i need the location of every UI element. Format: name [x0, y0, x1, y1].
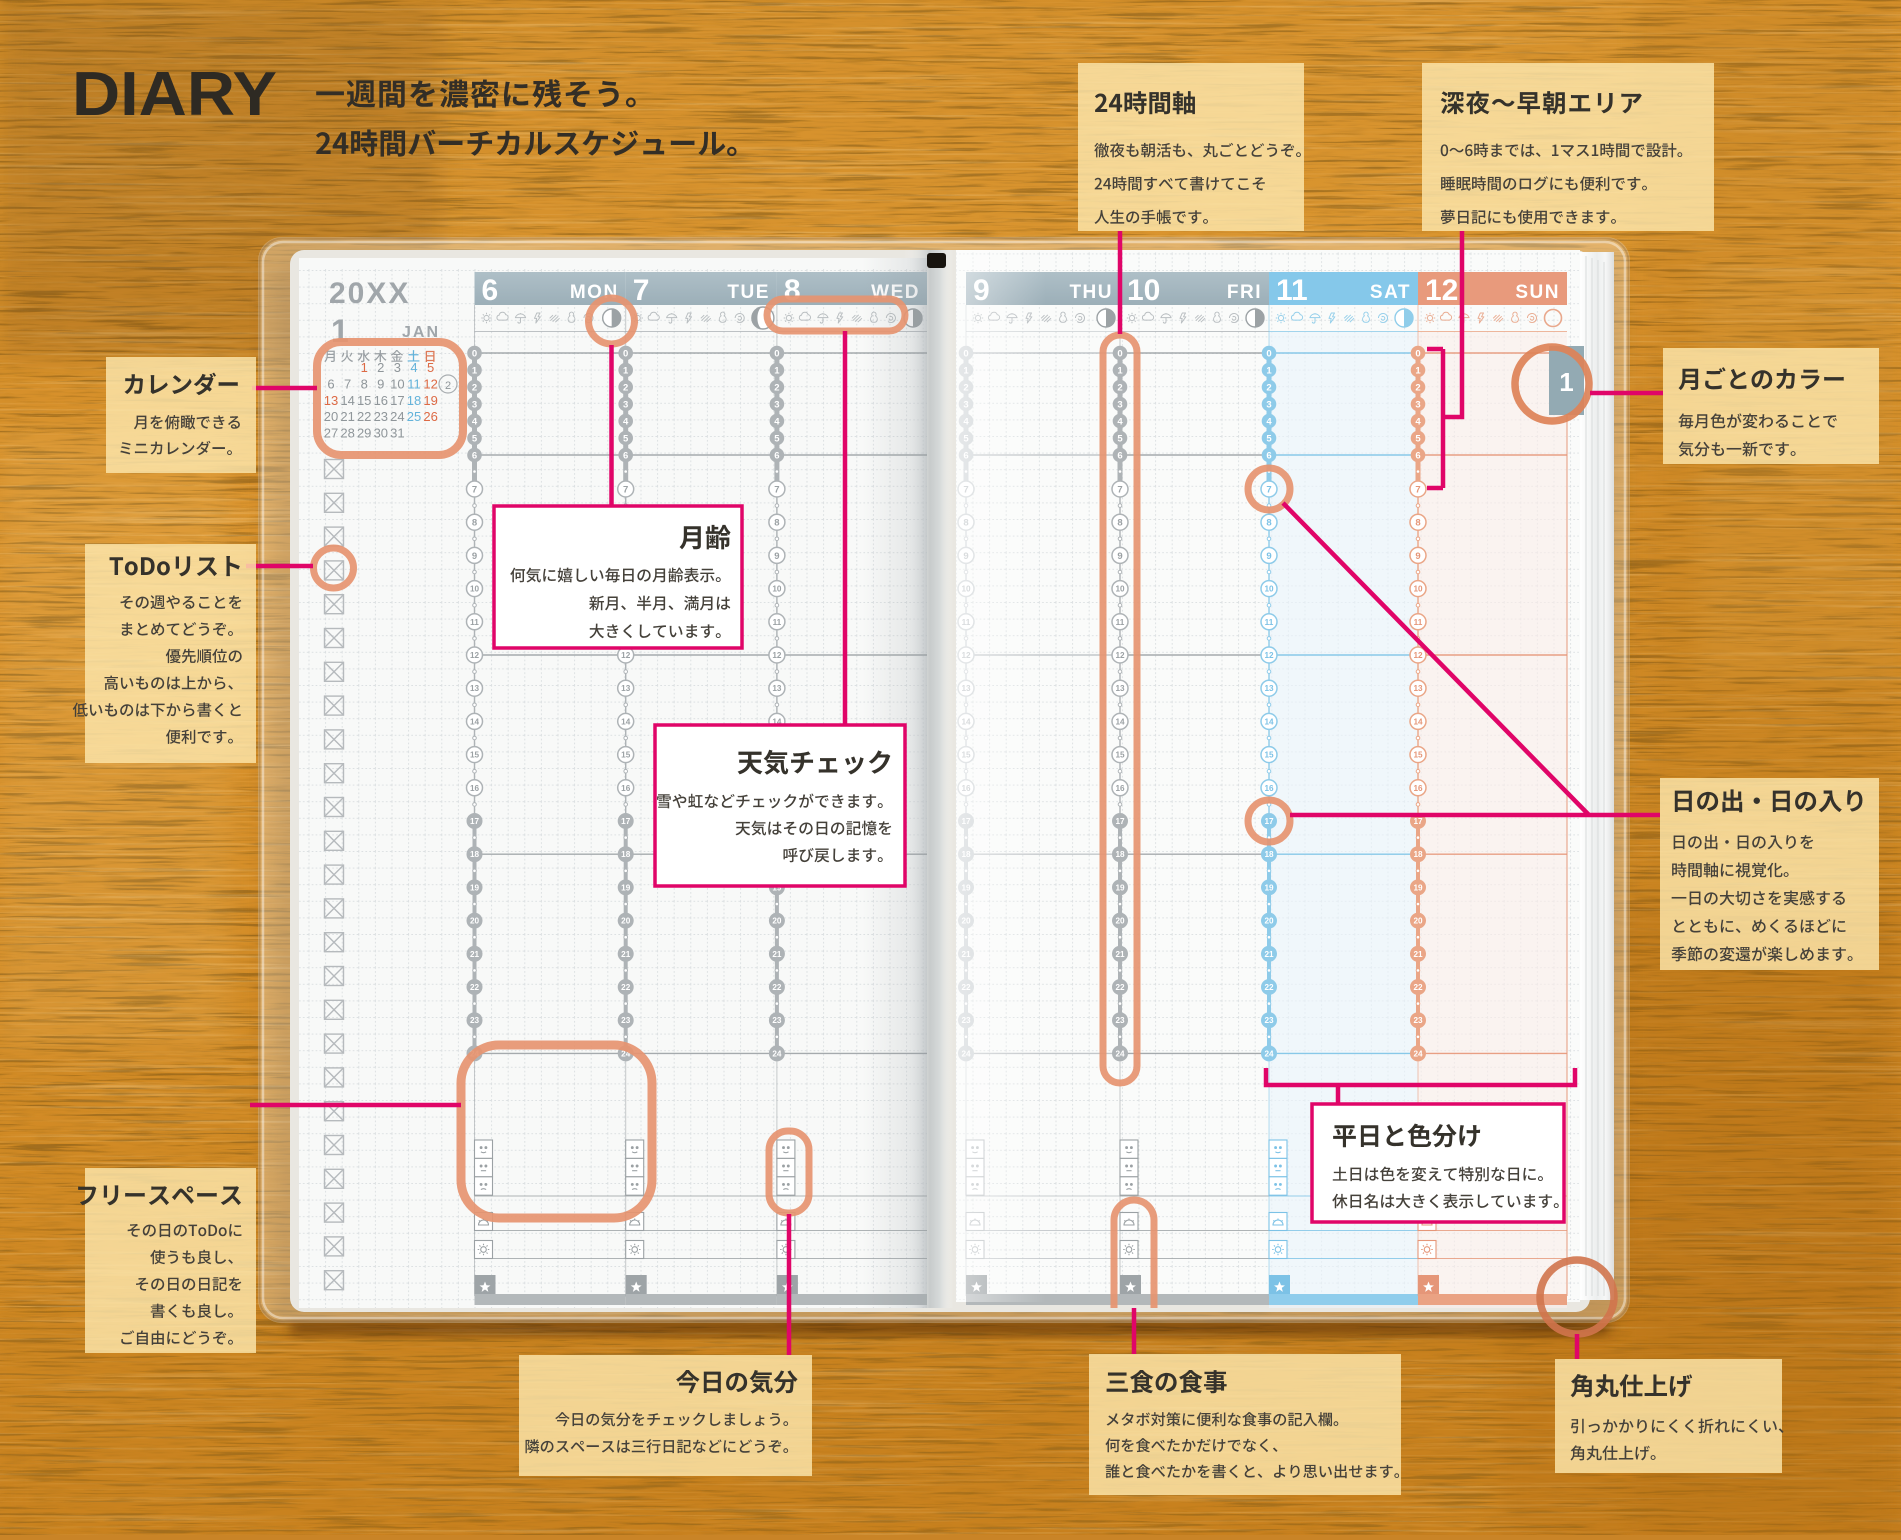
svg-text:15: 15 — [357, 393, 371, 408]
svg-text:30: 30 — [374, 426, 388, 441]
svg-text:6: 6 — [1117, 450, 1122, 461]
svg-text:2: 2 — [472, 382, 477, 393]
svg-text:31: 31 — [390, 426, 404, 441]
svg-text:22: 22 — [1115, 983, 1125, 992]
svg-text:0: 0 — [774, 348, 779, 359]
svg-text:18: 18 — [407, 393, 421, 408]
svg-text:16: 16 — [470, 784, 480, 793]
svg-text:17: 17 — [1264, 817, 1274, 826]
svg-text:10: 10 — [1127, 274, 1160, 307]
svg-text:3: 3 — [1415, 399, 1420, 410]
svg-text:4: 4 — [623, 416, 629, 427]
svg-text:12: 12 — [621, 651, 631, 660]
svg-text:20: 20 — [621, 917, 631, 926]
svg-text:7: 7 — [774, 484, 779, 495]
svg-text:FRI: FRI — [1227, 282, 1262, 303]
svg-text:15: 15 — [1264, 751, 1274, 760]
svg-text:14: 14 — [470, 717, 480, 726]
svg-text:13: 13 — [621, 684, 631, 693]
svg-text:3: 3 — [623, 399, 628, 410]
svg-text:22: 22 — [772, 983, 782, 992]
svg-text:2: 2 — [774, 382, 779, 393]
svg-text:16: 16 — [1264, 784, 1274, 793]
svg-text:11: 11 — [773, 618, 782, 627]
svg-text:1: 1 — [1415, 365, 1421, 376]
svg-text:1: 1 — [774, 365, 780, 376]
svg-text:2: 2 — [1117, 382, 1122, 393]
svg-text:10: 10 — [390, 376, 404, 391]
svg-text:5: 5 — [1415, 433, 1421, 444]
svg-text:4: 4 — [410, 360, 417, 375]
svg-text:5: 5 — [472, 433, 478, 444]
svg-text:12: 12 — [1115, 651, 1125, 660]
svg-text:2: 2 — [1266, 382, 1271, 393]
svg-text:20: 20 — [1413, 917, 1423, 926]
svg-text:5: 5 — [1117, 433, 1123, 444]
svg-text:11: 11 — [1116, 618, 1125, 627]
svg-text:22: 22 — [470, 983, 480, 992]
svg-text:9: 9 — [1415, 551, 1420, 562]
svg-text:6: 6 — [482, 274, 499, 307]
svg-text:19: 19 — [621, 883, 631, 892]
svg-text:0: 0 — [472, 348, 477, 359]
svg-text:1: 1 — [361, 360, 368, 375]
svg-text:16: 16 — [621, 784, 631, 793]
svg-text:15: 15 — [621, 751, 631, 760]
svg-text:23: 23 — [1115, 1016, 1125, 1025]
svg-text:TUE: TUE — [727, 282, 770, 303]
svg-text:11: 11 — [1276, 274, 1308, 307]
svg-text:13: 13 — [324, 393, 338, 408]
svg-text:7: 7 — [1266, 484, 1271, 495]
svg-text:26: 26 — [423, 409, 437, 424]
svg-text:3: 3 — [1117, 399, 1122, 410]
svg-text:7: 7 — [1117, 484, 1122, 495]
svg-text:10: 10 — [1413, 585, 1423, 594]
svg-text:13: 13 — [1264, 684, 1274, 693]
svg-text:0: 0 — [1266, 348, 1271, 359]
svg-text:12: 12 — [470, 651, 480, 660]
svg-text:22: 22 — [1413, 983, 1423, 992]
svg-text:7: 7 — [344, 376, 351, 391]
svg-text:7: 7 — [623, 484, 628, 495]
svg-text:2: 2 — [377, 360, 384, 375]
svg-text:9: 9 — [1266, 551, 1271, 562]
svg-text:2: 2 — [1415, 382, 1420, 393]
svg-text:6: 6 — [327, 376, 334, 391]
svg-text:5: 5 — [623, 433, 629, 444]
svg-text:24: 24 — [1264, 1049, 1274, 1058]
svg-text:18: 18 — [1413, 850, 1423, 859]
svg-text:1: 1 — [1266, 365, 1272, 376]
svg-text:14: 14 — [1413, 717, 1423, 726]
svg-text:17: 17 — [1413, 817, 1423, 826]
svg-text:8: 8 — [1117, 518, 1122, 529]
svg-text:11: 11 — [470, 618, 479, 627]
svg-text:1: 1 — [1559, 367, 1573, 397]
svg-text:2: 2 — [445, 380, 451, 392]
svg-text:21: 21 — [1115, 950, 1125, 959]
svg-text:2: 2 — [623, 382, 628, 393]
svg-text:13: 13 — [1115, 684, 1125, 693]
svg-text:7: 7 — [633, 274, 650, 307]
svg-text:21: 21 — [470, 950, 480, 959]
svg-text:6: 6 — [1415, 450, 1420, 461]
svg-text:16: 16 — [374, 393, 388, 408]
svg-text:14: 14 — [340, 393, 354, 408]
svg-text:21: 21 — [1264, 950, 1274, 959]
svg-text:18: 18 — [1264, 850, 1274, 859]
svg-text:11: 11 — [407, 376, 421, 391]
svg-text:16: 16 — [1413, 784, 1423, 793]
svg-text:5: 5 — [774, 433, 780, 444]
svg-text:THU: THU — [1069, 282, 1113, 303]
svg-text:9: 9 — [774, 551, 779, 562]
svg-text:23: 23 — [772, 1016, 782, 1025]
svg-text:13: 13 — [772, 684, 782, 693]
svg-text:7: 7 — [472, 484, 477, 495]
svg-text:8: 8 — [1266, 518, 1271, 529]
svg-text:17: 17 — [1115, 817, 1125, 826]
svg-text:20: 20 — [470, 917, 480, 926]
svg-text:23: 23 — [470, 1016, 480, 1025]
svg-text:23: 23 — [374, 409, 388, 424]
svg-text:1: 1 — [472, 365, 478, 376]
svg-text:12: 12 — [1413, 651, 1423, 660]
svg-text:10: 10 — [1264, 585, 1274, 594]
svg-text:20XX: 20XX — [329, 277, 410, 310]
svg-text:22: 22 — [357, 409, 371, 424]
svg-text:27: 27 — [324, 426, 338, 441]
svg-text:14: 14 — [621, 717, 631, 726]
svg-text:13: 13 — [470, 684, 480, 693]
svg-text:29: 29 — [357, 426, 371, 441]
svg-text:22: 22 — [1264, 983, 1274, 992]
svg-text:12: 12 — [1264, 651, 1274, 660]
svg-text:10: 10 — [772, 585, 782, 594]
svg-text:19: 19 — [1115, 883, 1125, 892]
svg-text:19: 19 — [1413, 883, 1423, 892]
svg-text:18: 18 — [1115, 850, 1125, 859]
svg-text:3: 3 — [394, 360, 401, 375]
svg-text:25: 25 — [407, 409, 421, 424]
svg-text:DIARY: DIARY — [72, 60, 277, 129]
svg-text:4: 4 — [472, 416, 478, 427]
svg-text:19: 19 — [470, 883, 480, 892]
svg-text:1: 1 — [1117, 365, 1123, 376]
svg-text:5: 5 — [1266, 433, 1272, 444]
svg-text:3: 3 — [774, 399, 779, 410]
svg-text:20: 20 — [1115, 917, 1125, 926]
svg-text:3: 3 — [472, 399, 477, 410]
svg-text:17: 17 — [390, 393, 404, 408]
svg-text:19: 19 — [1264, 883, 1274, 892]
svg-text:9: 9 — [377, 376, 384, 391]
svg-text:8: 8 — [361, 376, 368, 391]
svg-text:4: 4 — [1266, 416, 1272, 427]
svg-text:3: 3 — [1266, 399, 1271, 410]
svg-text:8: 8 — [472, 518, 477, 529]
svg-text:23: 23 — [621, 1016, 631, 1025]
svg-text:23: 23 — [1264, 1016, 1274, 1025]
svg-text:24: 24 — [1413, 1049, 1423, 1058]
svg-text:8: 8 — [774, 518, 779, 529]
svg-text:0: 0 — [623, 348, 628, 359]
svg-text:4: 4 — [1415, 416, 1421, 427]
svg-text:14: 14 — [1115, 717, 1125, 726]
svg-text:6: 6 — [1266, 450, 1271, 461]
svg-text:0: 0 — [1117, 348, 1122, 359]
svg-text:24: 24 — [1115, 1049, 1125, 1058]
svg-text:8: 8 — [1415, 518, 1420, 529]
svg-text:17: 17 — [470, 817, 480, 826]
svg-text:28: 28 — [340, 426, 354, 441]
svg-text:7: 7 — [1415, 484, 1420, 495]
svg-text:21: 21 — [1413, 950, 1423, 959]
svg-text:12: 12 — [423, 376, 437, 391]
svg-text:21: 21 — [621, 950, 631, 959]
svg-text:22: 22 — [621, 983, 631, 992]
svg-text:21: 21 — [340, 409, 354, 424]
svg-text:10: 10 — [470, 585, 480, 594]
svg-text:15: 15 — [1413, 751, 1423, 760]
svg-text:12: 12 — [772, 651, 782, 660]
svg-text:18: 18 — [621, 850, 631, 859]
svg-text:17: 17 — [621, 817, 631, 826]
svg-text:11: 11 — [1265, 618, 1274, 627]
svg-text:4: 4 — [774, 416, 780, 427]
svg-text:10: 10 — [1115, 585, 1125, 594]
svg-text:9: 9 — [1117, 551, 1122, 562]
svg-text:6: 6 — [774, 450, 779, 461]
svg-text:21: 21 — [772, 950, 782, 959]
svg-text:11: 11 — [1414, 618, 1423, 627]
svg-text:6: 6 — [472, 450, 477, 461]
svg-text:6: 6 — [623, 450, 628, 461]
svg-text:12: 12 — [1425, 274, 1458, 307]
svg-text:13: 13 — [1413, 684, 1423, 693]
svg-text:15: 15 — [1115, 751, 1125, 760]
svg-text:19: 19 — [423, 393, 437, 408]
svg-text:SUN: SUN — [1515, 282, 1560, 303]
svg-text:24: 24 — [772, 1049, 782, 1058]
svg-text:15: 15 — [470, 751, 480, 760]
svg-text:0: 0 — [1415, 348, 1420, 359]
svg-text:14: 14 — [1264, 717, 1274, 726]
svg-text:20: 20 — [772, 917, 782, 926]
svg-text:24: 24 — [390, 409, 404, 424]
svg-text:4: 4 — [1117, 416, 1123, 427]
svg-text:20: 20 — [324, 409, 338, 424]
svg-text:5: 5 — [427, 360, 434, 375]
svg-text:1: 1 — [623, 365, 629, 376]
svg-text:18: 18 — [470, 850, 480, 859]
svg-text:16: 16 — [1115, 784, 1125, 793]
svg-text:20: 20 — [1264, 917, 1274, 926]
svg-text:9: 9 — [472, 551, 477, 562]
svg-text:SAT: SAT — [1370, 282, 1411, 303]
svg-text:23: 23 — [1413, 1016, 1423, 1025]
